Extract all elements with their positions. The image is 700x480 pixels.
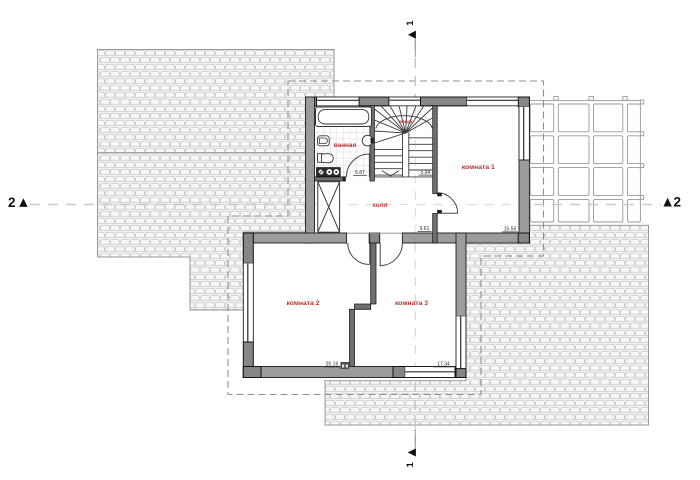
svg-text:1: 1 bbox=[405, 20, 416, 26]
svg-text:комната 3: комната 3 bbox=[395, 300, 428, 307]
svg-text:1: 1 bbox=[405, 462, 416, 468]
svg-text:холл: холл bbox=[372, 202, 387, 209]
svg-text:вверх: вверх bbox=[399, 119, 413, 124]
svg-text:2: 2 bbox=[8, 195, 16, 210]
svg-text:ванная: ванная bbox=[334, 142, 357, 149]
svg-text:2: 2 bbox=[674, 195, 682, 210]
svg-text:комната 2: комната 2 bbox=[286, 300, 319, 307]
svg-text:комната 1: комната 1 bbox=[462, 164, 495, 171]
